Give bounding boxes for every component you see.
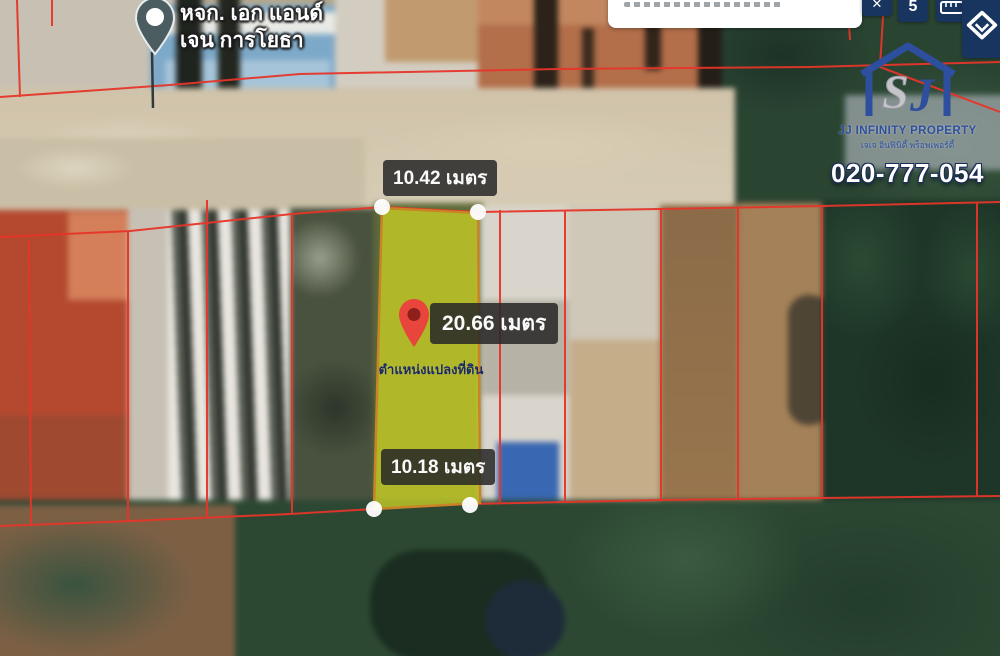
jj-house-logo-icon: S J xyxy=(848,38,968,120)
logo-glyph-blue: J xyxy=(909,69,936,120)
search-query-cropped-text xyxy=(624,2,784,7)
business-pin-icon[interactable] xyxy=(136,0,174,54)
logo-glyph-gray: S xyxy=(882,66,909,119)
layers-button[interactable] xyxy=(962,0,1000,58)
company-name: JJ INFINITY PROPERTY xyxy=(815,125,1000,137)
agency-watermark: S J JJ INFINITY PROPERTY เจเจ อินฟินิตี้… xyxy=(815,38,1000,189)
business-name-line2: เจน การโยธา xyxy=(180,27,323,54)
map-canvas[interactable]: 10.42 เมตร 20.66 เมตร 10.18 เมตร ตำแหน่ง… xyxy=(0,0,1000,656)
pin-pole xyxy=(152,52,153,108)
measurement-label-bottom: 10.18 เมตร xyxy=(381,449,495,485)
measurement-label-side: 20.66 เมตร xyxy=(430,303,558,344)
business-pin-label[interactable]: หจก. เอก แอนด์ เจน การโยธา xyxy=(180,0,323,54)
vertex-handle[interactable] xyxy=(366,501,382,517)
close-button[interactable]: ✕ xyxy=(862,0,892,16)
search-input[interactable] xyxy=(608,0,862,28)
phone-number: 020-777-054 xyxy=(815,158,1000,189)
badge-5-icon: 5 xyxy=(909,0,918,16)
close-icon: ✕ xyxy=(872,0,883,12)
diamond-icon xyxy=(965,9,999,43)
boundary-line xyxy=(29,240,31,524)
parcel-caption: ตำแหน่งแปลงที่ดิน xyxy=(366,359,496,380)
vertex-handle[interactable] xyxy=(374,199,390,215)
company-name-thai: เจเจ อินฟินิตี้ พร็อพเพอร์ตี้ xyxy=(815,138,1000,152)
business-name-line1: หจก. เอก แอนด์ xyxy=(180,0,323,27)
measurement-label-top: 10.42 เมตร xyxy=(383,160,497,196)
badge-button[interactable]: 5 xyxy=(898,0,928,22)
vertex-handle[interactable] xyxy=(470,204,486,220)
boundary-line xyxy=(17,0,20,97)
vertex-handle[interactable] xyxy=(462,497,478,513)
